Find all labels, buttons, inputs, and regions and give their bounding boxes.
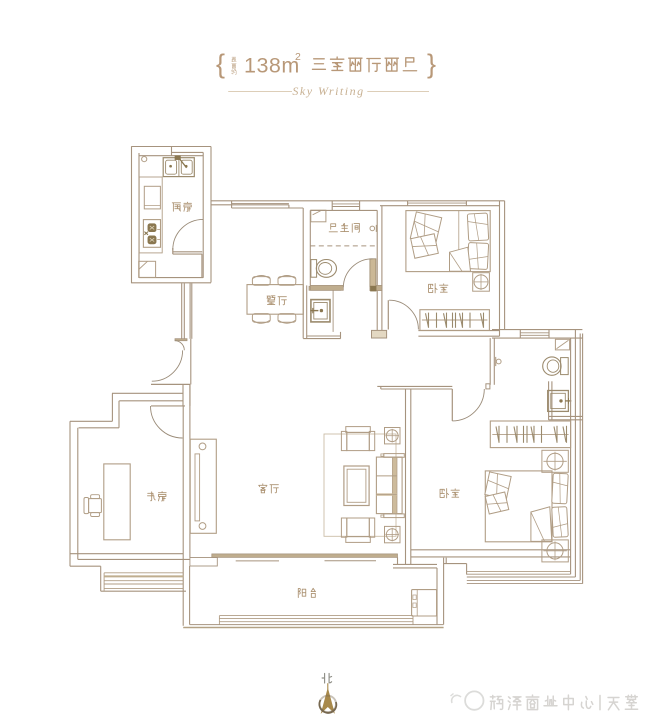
- svg-text:{: {: [216, 49, 225, 79]
- svg-text:2: 2: [295, 51, 301, 63]
- svg-text:Sky Writing: Sky Writing: [292, 84, 364, 98]
- svg-text:138m: 138m: [244, 54, 300, 78]
- svg-text:}: }: [427, 49, 436, 79]
